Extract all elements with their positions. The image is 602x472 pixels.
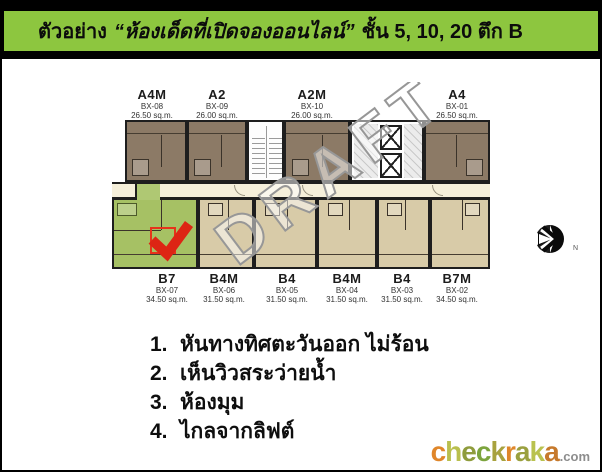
feature-item: 1. หันทางทิศตะวันออก ไม่ร้อน (150, 330, 510, 359)
features-list: 1. หันทางทิศตะวันออก ไม่ร้อน 2. เห็นวิวส… (150, 330, 510, 446)
draft-watermark: DRAFT (102, 82, 502, 302)
logo-letter: a (544, 438, 559, 466)
unit-area: 34.50 sq.m. (415, 296, 499, 304)
logo-letter: c (431, 438, 446, 466)
feature-number: 3. (150, 388, 180, 417)
feature-number: 1. (150, 330, 180, 359)
checkraka-logo[interactable]: c h e c k r a k a .com (431, 438, 590, 466)
logo-letter: a (515, 438, 530, 466)
logo-letter: k (530, 438, 545, 466)
unit-code: BX-02 (415, 287, 499, 295)
feature-text: ไกลจากลิฟต์ (180, 417, 294, 446)
header-suffix: ชั้น 5, 10, 20 ตึก B (362, 15, 523, 47)
feature-text: หันทางทิศตะวันออก ไม่ร้อน (180, 330, 429, 359)
logo-letter: k (490, 438, 505, 466)
header-quoted-title: “ห้องเด็ดที่เปิดจองออนไลน์” (114, 15, 355, 47)
north-compass-icon (533, 223, 571, 259)
logo-letter: r (505, 438, 515, 466)
logo-domain-suffix: .com (560, 449, 590, 464)
draft-watermark-text: DRAFT (202, 82, 458, 278)
header-bar: ตัวอย่าง “ห้องเด็ดที่เปิดจองออนไลน์” ชั้… (4, 11, 598, 51)
unit-label-b7m: B7M BX-02 34.50 sq.m. (415, 272, 499, 304)
feature-number: 2. (150, 359, 180, 388)
infographic-canvas: ตัวอย่าง “ห้องเด็ดที่เปิดจองออนไลน์” ชั้… (0, 0, 602, 472)
logo-letter: h (445, 438, 461, 466)
north-label: N (573, 245, 578, 252)
feature-item: 2. เห็นวิวสระว่ายน้ำ (150, 359, 510, 388)
header-prefix: ตัวอย่าง (38, 15, 107, 47)
checkmark-icon (142, 212, 202, 262)
unit-name: B7M (415, 272, 499, 285)
logo-letter: e (461, 438, 476, 466)
feature-item: 3. ห้องมุม (150, 388, 510, 417)
feature-number: 4. (150, 417, 180, 446)
feature-text: ห้องมุม (180, 388, 244, 417)
logo-letter: c (476, 438, 491, 466)
feature-text: เห็นวิวสระว่ายน้ำ (180, 359, 336, 388)
